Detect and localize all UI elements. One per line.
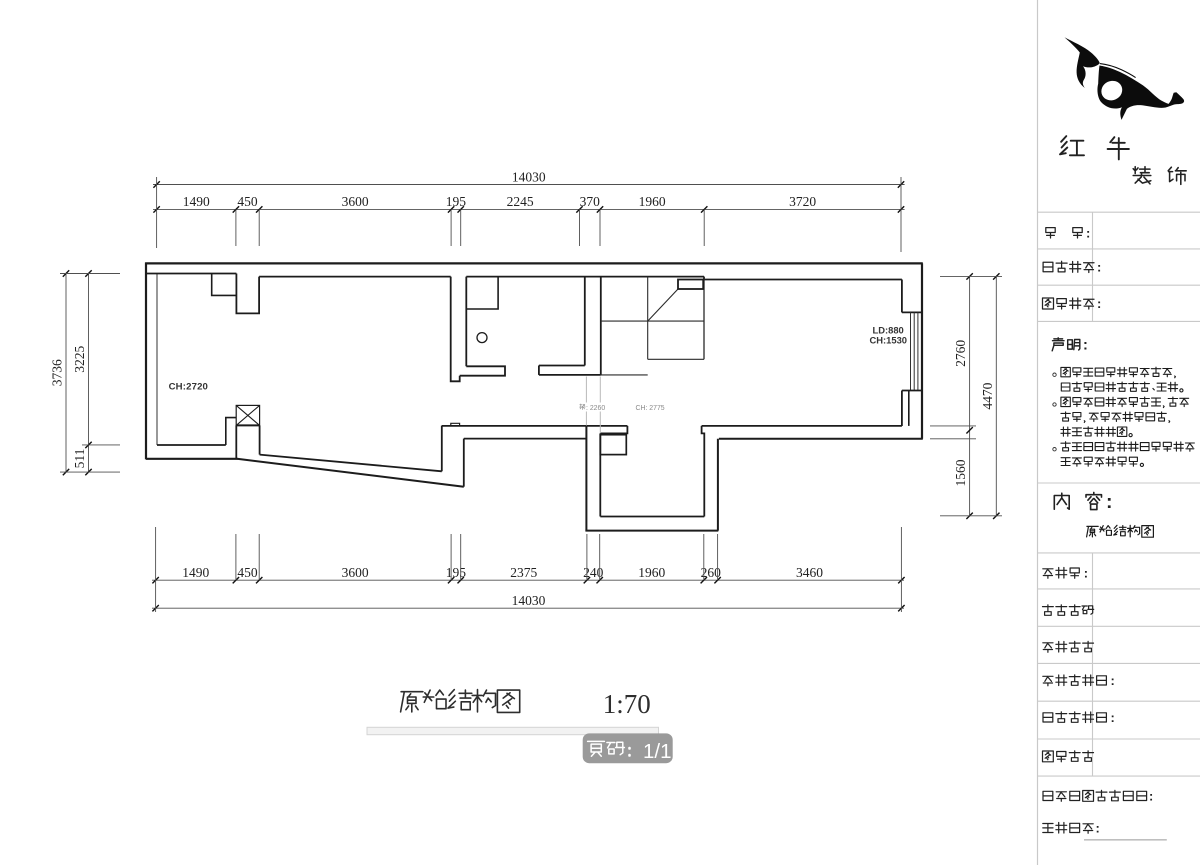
svg-text:4470: 4470 [980,382,995,409]
svg-text:14030: 14030 [512,593,546,608]
svg-text:3225: 3225 [72,345,87,372]
svg-text:450: 450 [237,194,258,209]
svg-text:370: 370 [580,194,601,209]
svg-text:CH:1530: CH:1530 [870,335,908,346]
svg-text:450: 450 [237,565,258,580]
svg-text:2760: 2760 [953,340,968,367]
svg-text:2245: 2245 [507,194,534,209]
svg-text:511: 511 [72,449,87,469]
svg-text::: : [1083,338,1088,354]
svg-text:2375: 2375 [510,565,537,580]
svg-text::: : [1111,710,1115,725]
svg-text::: : [1149,789,1153,804]
svg-text:1960: 1960 [639,194,666,209]
svg-text::: : [1086,226,1090,241]
svg-text::: : [1097,260,1101,275]
svg-text:CH:2720: CH:2720 [169,381,208,392]
svg-text:1:70: 1:70 [603,689,651,719]
svg-text:240: 240 [583,565,604,580]
svg-text::: : [1106,491,1113,513]
svg-text:1960: 1960 [638,565,665,580]
svg-text:1/1: 1/1 [643,740,672,763]
svg-text::: : [1111,673,1115,688]
svg-text:14030: 14030 [512,169,546,184]
svg-text:3600: 3600 [342,565,369,580]
svg-text:: 2260: : 2260 [586,405,605,412]
svg-text:3600: 3600 [342,194,369,209]
svg-text:195: 195 [446,194,467,209]
svg-text:1490: 1490 [183,194,210,209]
svg-text:1560: 1560 [953,459,968,486]
svg-text:195: 195 [446,565,467,580]
svg-text::: : [1096,821,1100,836]
svg-text::: : [1084,566,1088,581]
svg-text:3736: 3736 [50,359,65,386]
svg-text::: : [1097,296,1101,311]
svg-text:3720: 3720 [789,194,816,209]
svg-text:CH: 2775: CH: 2775 [636,405,665,412]
svg-text:1490: 1490 [182,565,209,580]
svg-text:3460: 3460 [796,565,823,580]
